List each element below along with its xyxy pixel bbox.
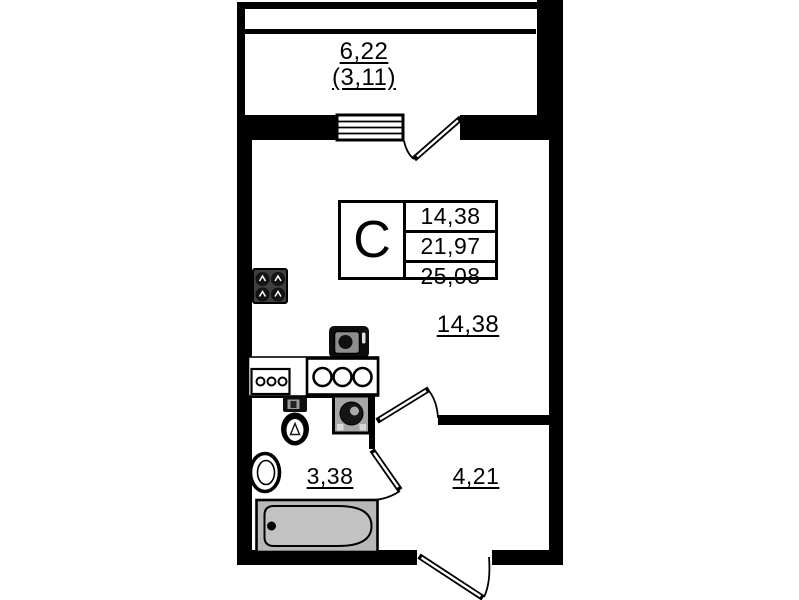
balcony-left-wall bbox=[237, 2, 245, 116]
cooktop-icon bbox=[307, 359, 378, 395]
balcony-door-icon bbox=[404, 118, 461, 159]
unit-type-label: С bbox=[341, 203, 406, 277]
balcony-rail-inner bbox=[245, 29, 536, 34]
bathtub-icon bbox=[257, 500, 378, 552]
balcony-coeff-label: (3,11) bbox=[314, 64, 414, 92]
cabinet-icon bbox=[252, 369, 290, 394]
apartment-info-table: С 14,38 21,97 25,08 bbox=[338, 200, 498, 280]
door-swing-arc bbox=[429, 391, 438, 418]
window-icon bbox=[337, 115, 403, 140]
hallway-top-wall bbox=[438, 415, 549, 425]
room-area-label: 14,38 bbox=[418, 311, 518, 339]
area-value-total: 21,97 bbox=[406, 233, 495, 263]
door-swing-arc bbox=[404, 141, 414, 159]
bathtub-drain bbox=[267, 522, 276, 531]
kitchen-sink-icon bbox=[329, 326, 369, 358]
area-value-living: 14,38 bbox=[406, 203, 495, 233]
entrance-door-icon bbox=[419, 556, 489, 598]
left-wall bbox=[237, 115, 252, 565]
door-swing-arc bbox=[484, 557, 489, 597]
right-wall bbox=[549, 115, 563, 565]
floor-plan-page: 6,22 (3,11) 14,38 3,38 4,21 С 14,38 21,9… bbox=[0, 0, 799, 600]
stove-icon bbox=[253, 269, 287, 303]
hallway-area-label: 4,21 bbox=[426, 463, 526, 490]
room-hallway-door-icon bbox=[377, 389, 438, 421]
balcony-area-label: 6,22 bbox=[314, 38, 414, 66]
bath-sink-icon bbox=[250, 454, 280, 492]
washing-machine-icon bbox=[334, 396, 370, 433]
toilet-icon bbox=[281, 397, 309, 446]
balcony-rail-outer bbox=[237, 2, 563, 9]
facade-wall-right bbox=[460, 115, 549, 140]
bottom-wall-right bbox=[492, 550, 563, 565]
area-value-overall: 25,08 bbox=[406, 263, 495, 290]
area-values: 14,38 21,97 25,08 bbox=[406, 203, 495, 277]
door-swing-arc bbox=[374, 491, 400, 500]
bathroom-area-label: 3,38 bbox=[280, 463, 380, 490]
